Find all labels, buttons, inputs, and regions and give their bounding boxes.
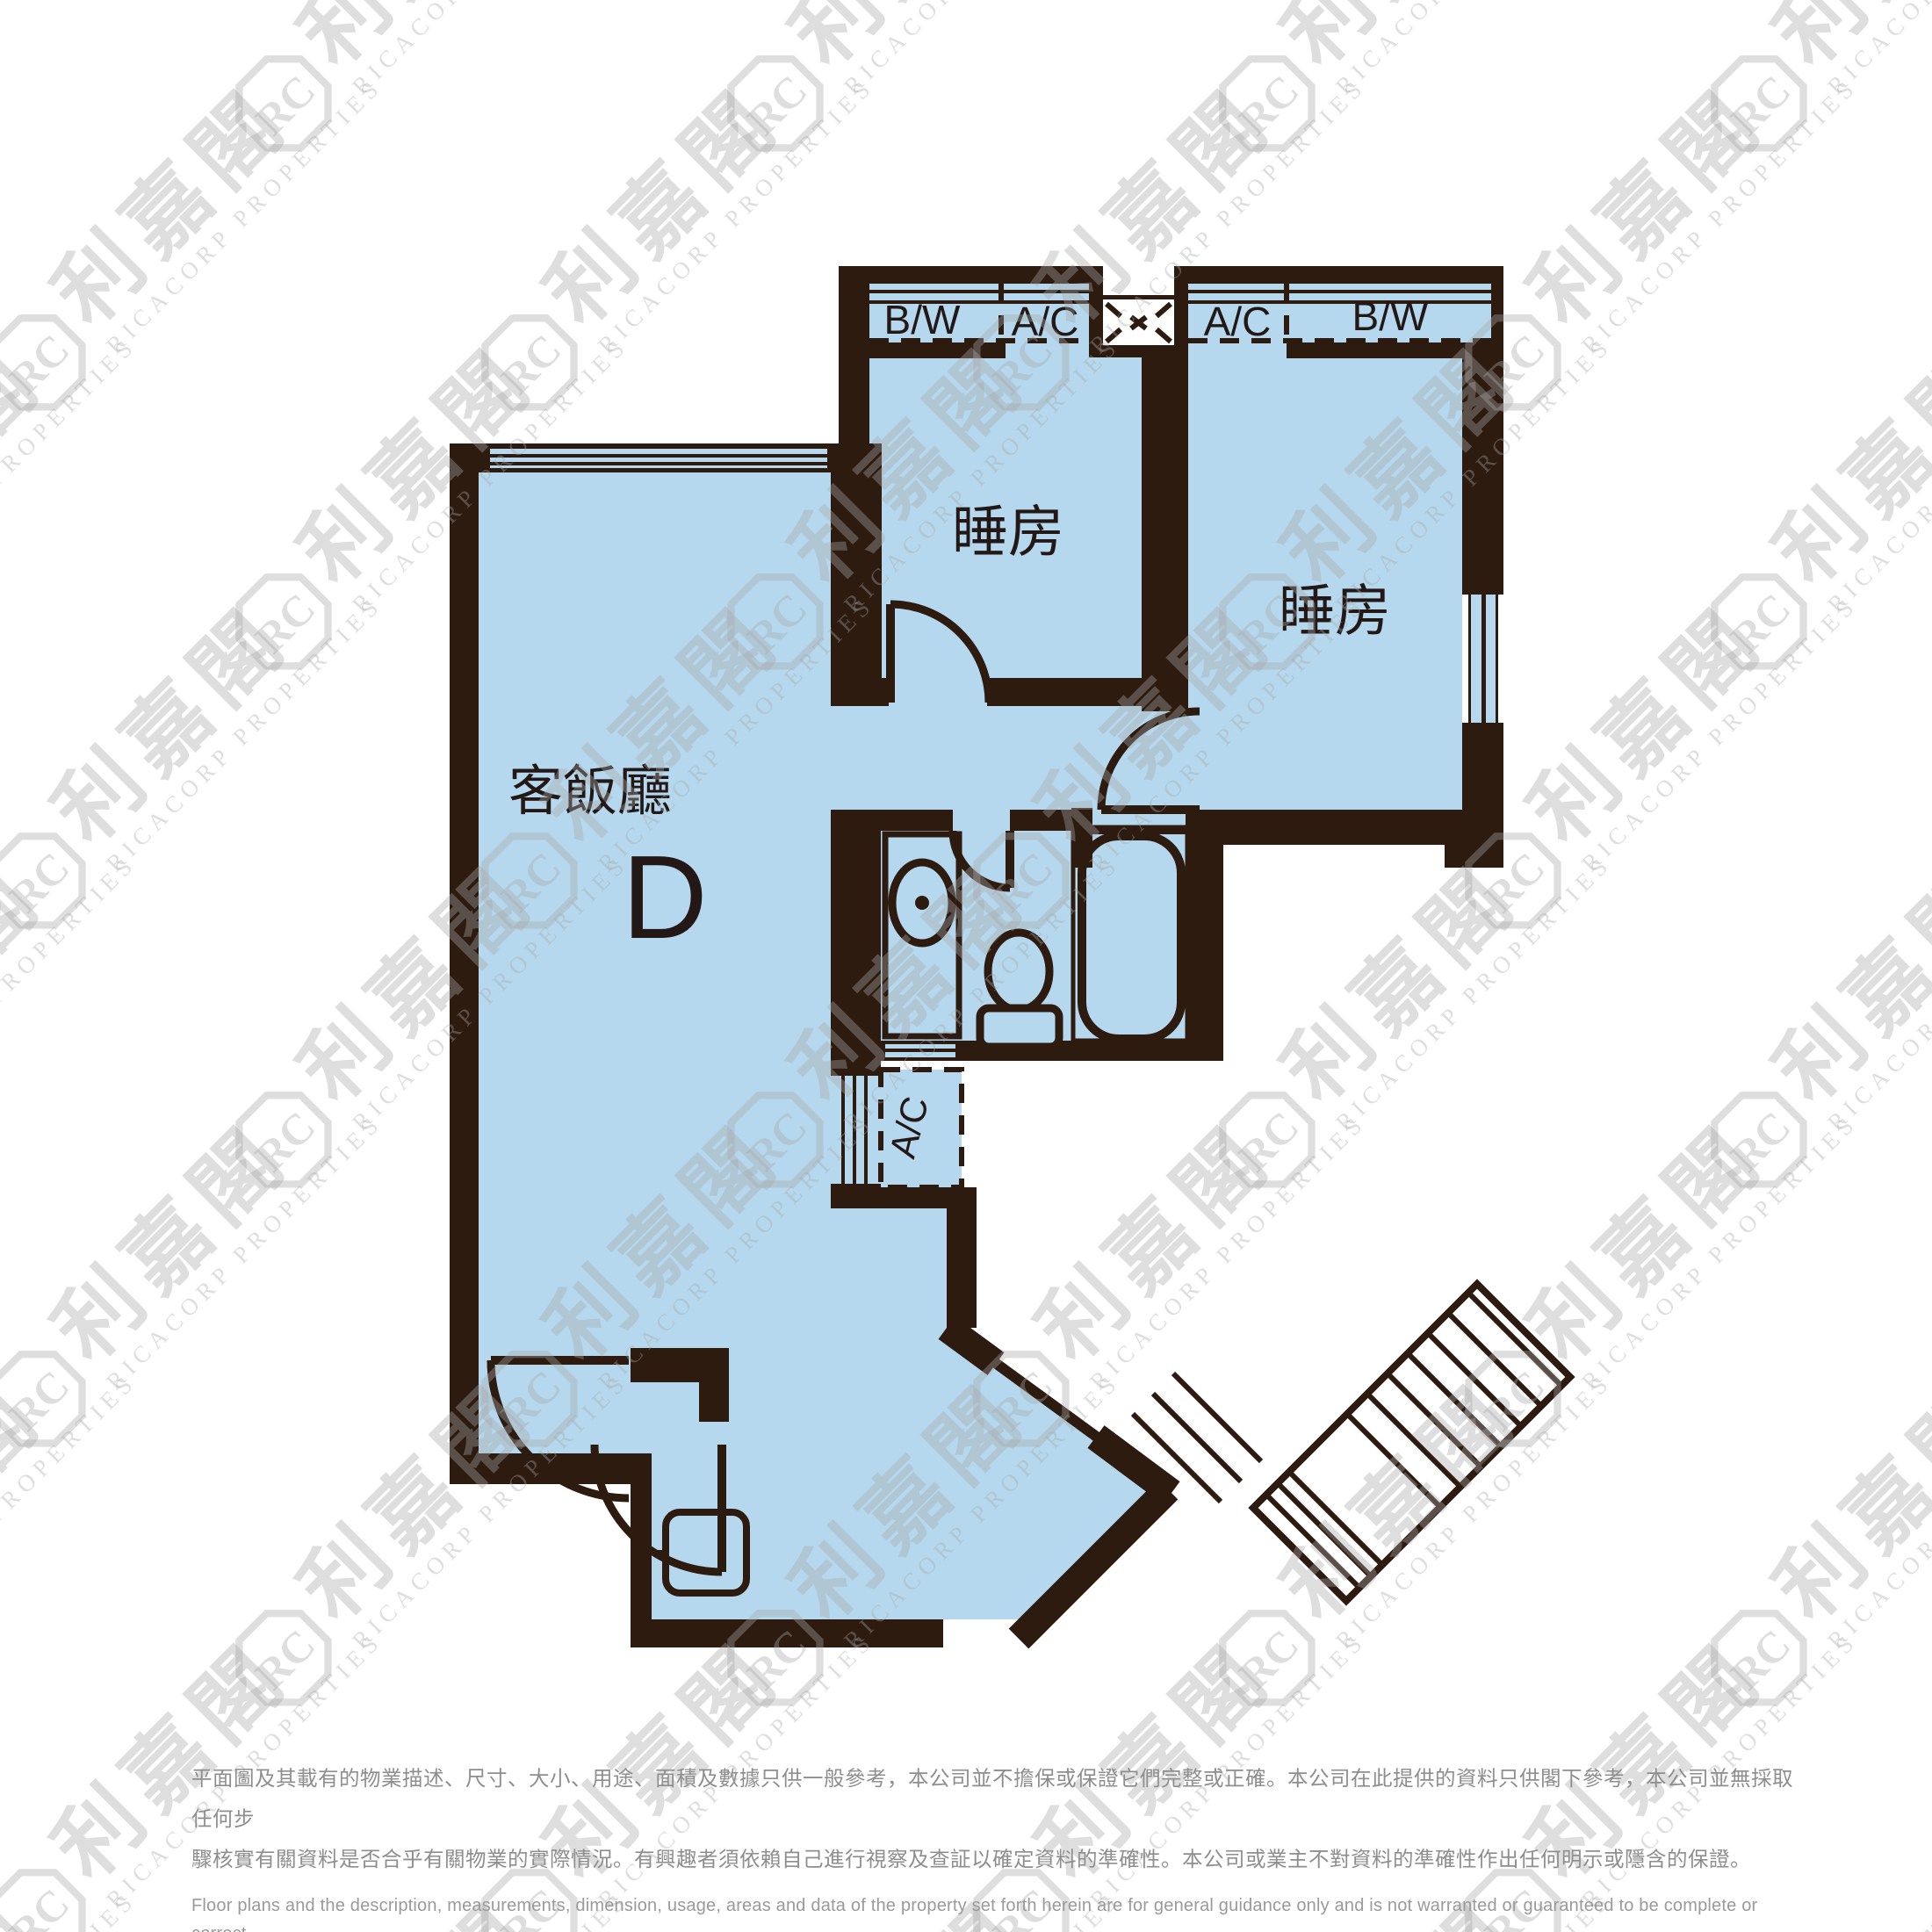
living-top-window-line1 [490,454,827,458]
bedroom2-window-mullion [1481,595,1486,723]
bathroom-bottom-window-line [885,1049,955,1052]
wall-bedroom2-bottom [1186,810,1503,845]
label-bedroom1: 睡房 [952,501,1064,564]
louvre-strip-floor [834,1076,881,1184]
wall-living-right [831,443,882,706]
louvre-line3 [864,1076,868,1184]
label-bay-window-right: B/W [1352,293,1429,339]
wall-bedroom1-bottom-b [987,678,1142,706]
wall-bedroom2-bottom-step [1445,845,1503,868]
living-top-window-line2 [490,462,827,465]
label-bay-window-left: B/W [884,297,961,342]
staircase-outline [1253,1284,1570,1601]
bedroom2-window-edge1 [1468,595,1471,723]
toilet-cistern [980,1008,1059,1047]
wall-foyer-bottom [631,1619,943,1647]
wall-duct-left [1089,266,1103,357]
bedroom2-window-edge2 [1496,595,1498,723]
label-unit: D [622,831,708,963]
floor-plan-page: B/W A/C A/C B/W 睡房 睡房 客飯廳 D A/C RC利嘉閣RIC… [0,0,1932,1932]
label-ac-left: A/C [1012,299,1079,344]
wall-bay-top-left [839,266,1099,284]
bay-right-glazing-line1 [1188,290,1493,293]
label-bedroom2: 睡房 [1279,580,1391,643]
wall-living-left [450,443,479,1484]
sink-drain [915,896,929,910]
floor-plan-drawing: B/W A/C A/C B/W 睡房 睡房 客飯廳 D A/C [0,0,1932,1932]
disclaimer-zh-line2: 驟核實有關資料是否合乎有關物業的實際情況。有興趣者須依賴自己進行視察及查証以確定… [191,1839,1799,1879]
disclaimer-en-line1: Floor plans and the description, measure… [191,1892,1799,1932]
wall-bedroom2-right-upper [1462,356,1503,595]
wall-entry-pinch [631,1348,729,1382]
wall-ac-platform-bottom [831,1187,963,1208]
wall-bedroom-divider [1142,342,1188,711]
wall-bathroom-top-b [1010,810,1073,831]
staircase [1253,1284,1570,1601]
wall-bathroom-left-upper [831,810,881,1076]
wall-bathroom-right [1186,810,1223,1061]
pipe-duct [1103,266,1174,345]
disclaimer-zh-line1: 平面圖及其載有的物業描述、尺寸、大小、用途、面積及數據只供一般參考，本公司並不擔… [191,1758,1799,1839]
label-ac-right: A/C [1204,299,1272,344]
louvre-line2 [853,1076,856,1184]
label-living-dining: 客飯廳 [508,762,672,822]
duct-divider [1103,295,1174,299]
wall-bathroom-top-a [881,810,953,831]
wall-entry-pinch-stub [699,1382,729,1422]
bay-left-glazing-line1 [869,290,1089,293]
disclaimer: 平面圖及其載有的物業描述、尺寸、大小、用途、面積及數據只供一般參考，本公司並不擔… [191,1758,1799,1932]
wall-foyer-right [947,1187,977,1328]
wall-bay-top-right [1178,266,1503,284]
louvre-line1 [841,1076,845,1184]
